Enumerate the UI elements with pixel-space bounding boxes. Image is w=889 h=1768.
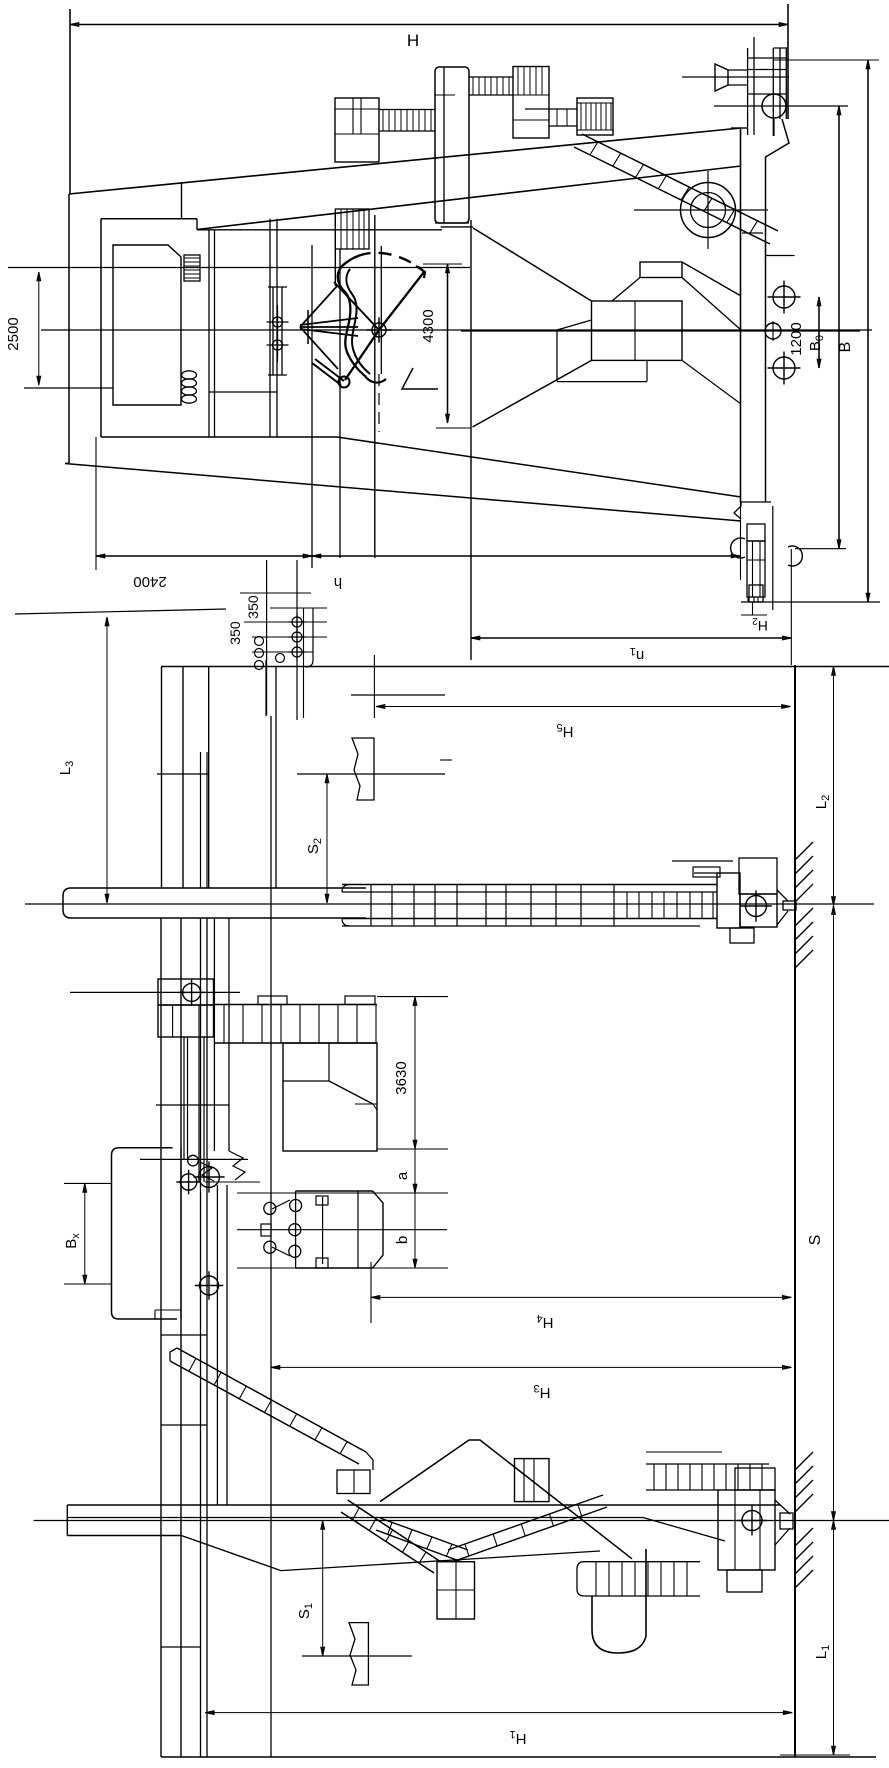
svg-text:4300: 4300 [420,309,437,342]
svg-text:S: S [807,1235,824,1246]
svg-text:2400: 2400 [133,573,166,590]
svg-text:a: a [394,1171,411,1180]
svg-text:1200: 1200 [788,322,805,355]
svg-text:350: 350 [227,621,243,645]
svg-text:H: H [407,31,419,50]
svg-text:2500: 2500 [5,317,22,350]
svg-text:b: b [394,1236,411,1244]
svg-text:h: h [334,574,342,591]
svg-text:3630: 3630 [393,1061,410,1094]
svg-text:350: 350 [245,595,261,619]
